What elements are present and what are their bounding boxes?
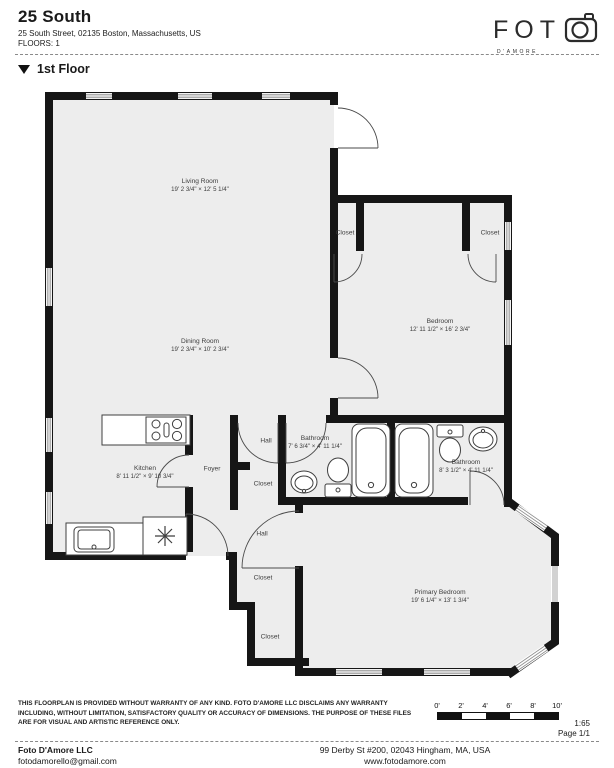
page-indicator: Page 1/1	[460, 729, 590, 738]
room-label-bedroom: Bedroom12' 11 1/2" × 16' 2 3/4"	[410, 317, 471, 335]
footer-company: Foto D'Amore LLC	[18, 745, 93, 755]
toilet-icon	[437, 425, 463, 462]
footer-website: www.fotodamore.com	[245, 756, 565, 766]
fridge-snowflake-icon	[143, 517, 187, 555]
scale-tick: 2'	[449, 701, 473, 710]
room-label-closet-1: Closet	[336, 228, 355, 237]
kitchen-sink-icon	[74, 527, 114, 552]
floor-plan-drawing	[0, 0, 614, 768]
bathtub-icon	[352, 424, 390, 497]
room-label-closet-4: Closet	[254, 573, 273, 582]
footer-divider	[15, 741, 599, 742]
room-label-bathroom-1: Bathroom7' 6 3/4" × 4' 11 1/4"	[288, 434, 342, 452]
room-label-primary-bedroom: Primary Bedroom19' 6 1/4" × 13' 1 3/4"	[411, 588, 469, 606]
bath-sink-icon	[469, 427, 497, 451]
room-label-bathroom-2: Bathroom8' 3 1/2" × 4' 11 1/4"	[439, 458, 493, 476]
room-label-hall-1: Hall	[260, 436, 271, 445]
room-label-hall-2: Hall	[256, 529, 267, 538]
room-label-foyer: Foyer	[204, 464, 221, 473]
footer-email: fotodamorello@gmail.com	[18, 756, 117, 766]
stove-icon	[146, 417, 186, 443]
scale-tick: 0'	[425, 701, 449, 710]
scale-tick: 6'	[497, 701, 521, 710]
bath-sink-icon	[291, 471, 317, 493]
room-label-closet-2: Closet	[481, 228, 500, 237]
bathtub-icon	[395, 424, 433, 497]
scale-bar-ticks: 0' 2' 4' 6' 8' 10'	[425, 701, 569, 710]
room-label-kitchen: Kitchen8' 11 1/2" × 9' 10 3/4"	[116, 464, 173, 482]
room-label-closet-3: Closet	[254, 479, 273, 488]
scale-tick: 8'	[521, 701, 545, 710]
scale-tick: 4'	[473, 701, 497, 710]
disclaimer-text: THIS FLOORPLAN IS PROVIDED WITHOUT WARRA…	[18, 699, 420, 728]
scale-ratio: 1:65	[460, 719, 590, 728]
footer-address: 99 Derby St #200, 02043 Hingham, MA, USA	[245, 745, 565, 755]
room-label-dining-room: Dining Room19' 2 3/4" × 10' 2 3/4"	[171, 337, 229, 355]
room-label-closet-5: Closet	[261, 632, 280, 641]
floorplan-page: 25 South 25 South Street, 02135 Boston, …	[0, 0, 614, 768]
scale-tick: 10'	[545, 701, 569, 710]
room-label-living-room: Living Room19' 2 3/4" × 12' 5 1/4"	[171, 177, 229, 195]
